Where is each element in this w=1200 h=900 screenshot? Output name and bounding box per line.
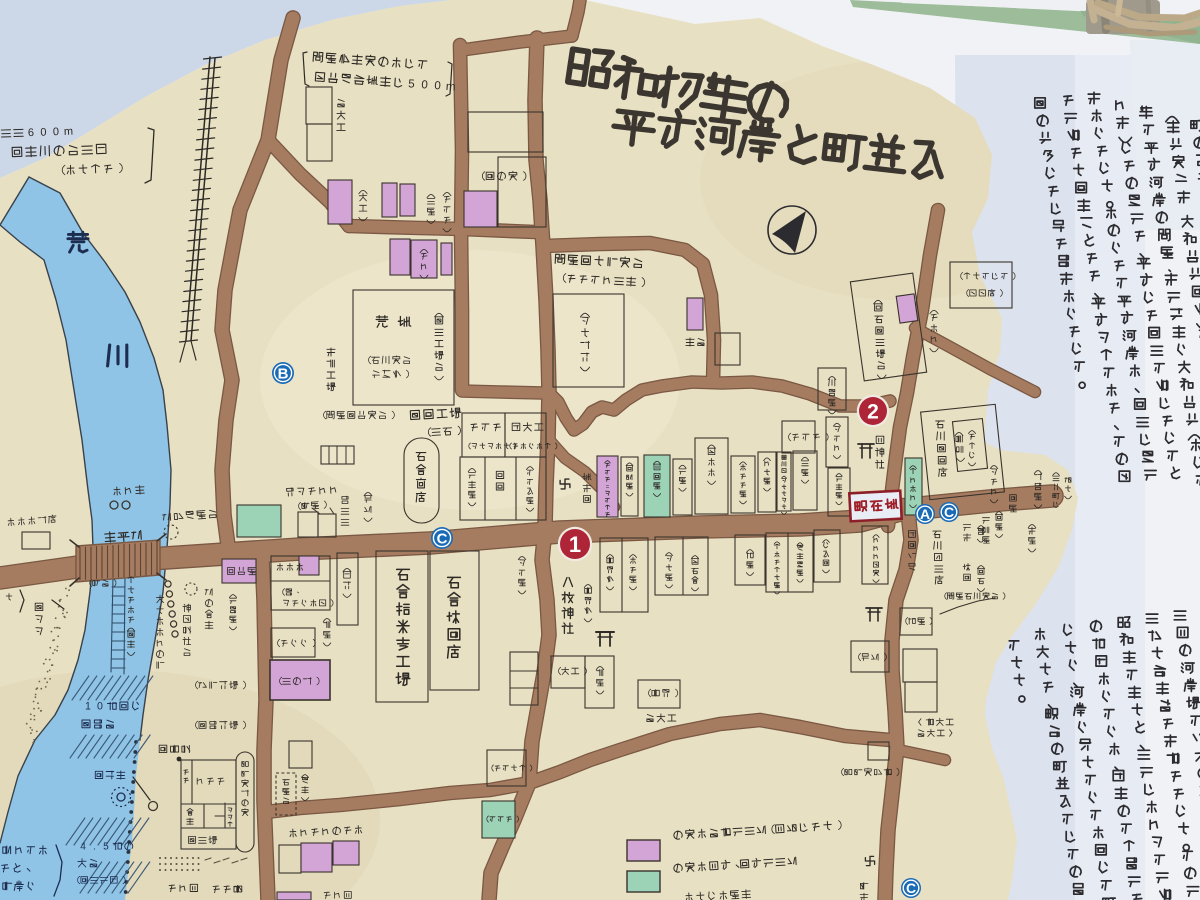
svg-text:B: B (278, 366, 289, 383)
svg-text:4: 4 (80, 842, 86, 853)
svg-text:1: 1 (569, 532, 581, 557)
svg-text:m: m (64, 126, 74, 138)
svg-text:0: 0 (434, 79, 441, 92)
svg-text:0: 0 (53, 126, 60, 138)
svg-text:C: C (906, 880, 916, 896)
svg-text:C: C (437, 531, 448, 548)
svg-text:5: 5 (103, 842, 109, 853)
svg-text:.: . (93, 842, 96, 853)
svg-text:6: 6 (28, 127, 35, 139)
svg-text:C: C (944, 504, 954, 520)
svg-text:0: 0 (97, 701, 103, 713)
svg-text:=: = (606, 484, 610, 490)
svg-text:0: 0 (421, 78, 428, 91)
svg-text:0: 0 (40, 126, 47, 138)
svg-text:2: 2 (867, 400, 879, 423)
svg-text:A: A (920, 506, 930, 522)
svg-text:5: 5 (408, 77, 415, 90)
svg-text:1: 1 (85, 701, 91, 713)
